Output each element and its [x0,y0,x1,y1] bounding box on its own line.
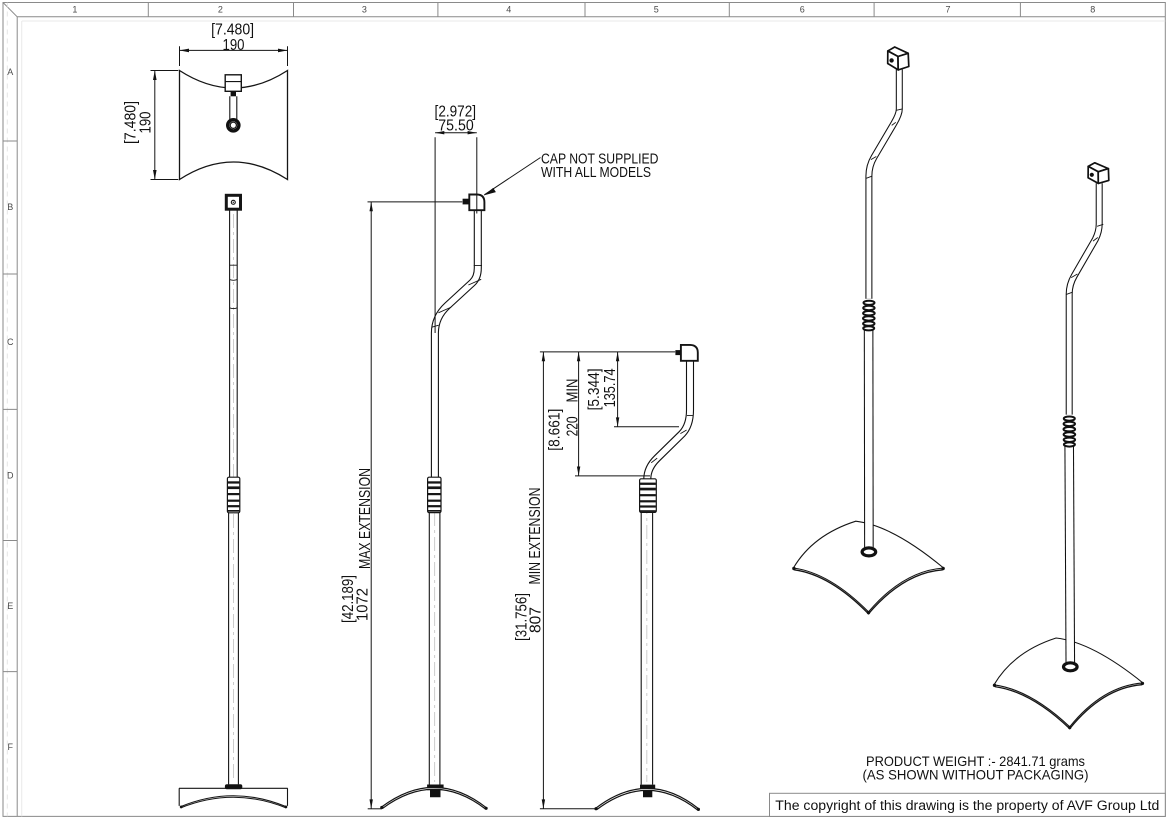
svg-text:A: A [7,67,13,77]
svg-text:[8.661]: [8.661] [546,409,563,451]
svg-text:D: D [7,470,14,480]
svg-text:7: 7 [945,5,950,15]
svg-text:220: 220 [565,416,582,436]
svg-text:5: 5 [654,5,659,15]
svg-text:[7.480]: [7.480] [211,22,254,39]
svg-text:4: 4 [506,5,511,15]
svg-text:F: F [8,742,14,752]
svg-text:75.50: 75.50 [438,117,474,134]
svg-text:807: 807 [528,607,545,633]
svg-text:3: 3 [362,5,367,15]
svg-text:6: 6 [800,5,805,15]
svg-text:135.74: 135.74 [602,368,619,407]
svg-text:1072: 1072 [355,588,372,621]
svg-text:E: E [7,601,13,611]
svg-text:1: 1 [72,5,77,15]
svg-text:MIN EXTENSION: MIN EXTENSION [527,488,544,585]
svg-text:MIN: MIN [564,379,581,403]
svg-text:MAX EXTENSION: MAX EXTENSION [357,468,374,569]
svg-text:(AS SHOWN WITHOUT PACKAGING): (AS SHOWN WITHOUT PACKAGING) [863,767,1089,783]
svg-text:The copyright of this drawing: The copyright of this drawing is the pro… [775,798,1159,814]
svg-text:190: 190 [223,37,245,54]
svg-text:B: B [7,202,13,212]
svg-text:8: 8 [1090,5,1095,15]
svg-text:[5.344]: [5.344] [586,368,603,410]
svg-text:WITH ALL MODELS: WITH ALL MODELS [541,164,651,181]
svg-text:2: 2 [218,5,223,15]
svg-text:190: 190 [138,111,155,133]
svg-text:C: C [7,337,14,347]
